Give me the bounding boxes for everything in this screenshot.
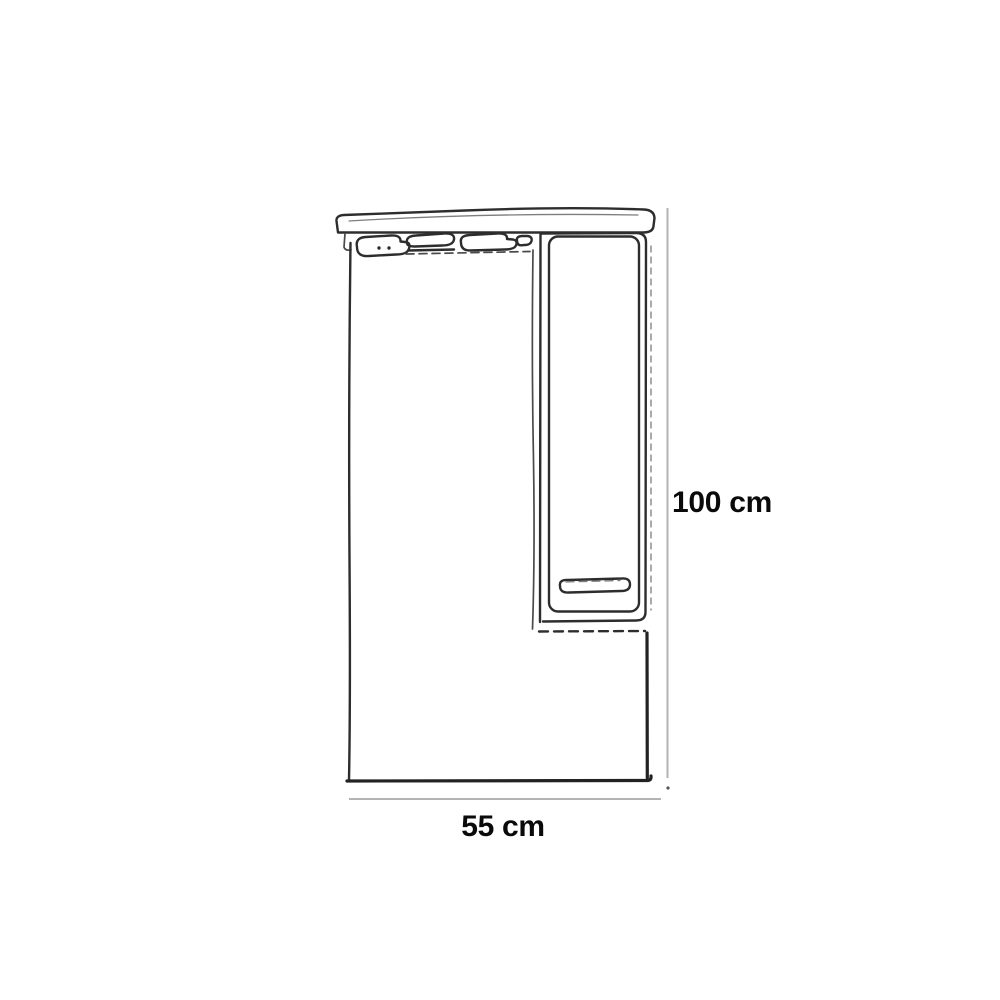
side-cabinet bbox=[539, 233, 651, 632]
furniture-dimension-drawing: 100 cm 55 cm bbox=[0, 0, 1000, 1000]
lamp-3 bbox=[461, 233, 517, 250]
strip-dashed-underline bbox=[406, 252, 530, 255]
lamp-1-dot-b bbox=[387, 246, 390, 249]
mirror-right-boundary bbox=[532, 250, 534, 629]
cabinet-underside-dashed-line bbox=[539, 631, 645, 632]
mirror-panel bbox=[347, 243, 651, 781]
lamp-2-underline bbox=[408, 250, 454, 251]
canopy-inner-line bbox=[349, 214, 638, 221]
cabinet-left-edge bbox=[540, 234, 541, 622]
top-canopy bbox=[336, 208, 654, 232]
light-fixture-strip bbox=[344, 233, 532, 256]
diagram-canvas: 100 cm 55 cm bbox=[0, 0, 1000, 1000]
dimension-annotations: 100 cm 55 cm bbox=[349, 208, 772, 843]
lamp-4 bbox=[517, 236, 532, 245]
dimension-end-dot bbox=[666, 786, 669, 789]
cabinet-door bbox=[549, 237, 639, 612]
lamp-2 bbox=[407, 233, 454, 246]
lamp-1-dot-a bbox=[377, 246, 380, 249]
door-handle bbox=[560, 578, 630, 592]
lamp-1 bbox=[357, 235, 410, 256]
height-dimension-label: 100 cm bbox=[672, 486, 772, 519]
mirror-left-edge bbox=[349, 243, 351, 780]
canopy-outline bbox=[336, 208, 654, 232]
cabinet-top-right-bottom bbox=[541, 233, 646, 622]
width-dimension-label: 55 cm bbox=[461, 810, 545, 843]
body-bottom-edge bbox=[347, 776, 651, 781]
